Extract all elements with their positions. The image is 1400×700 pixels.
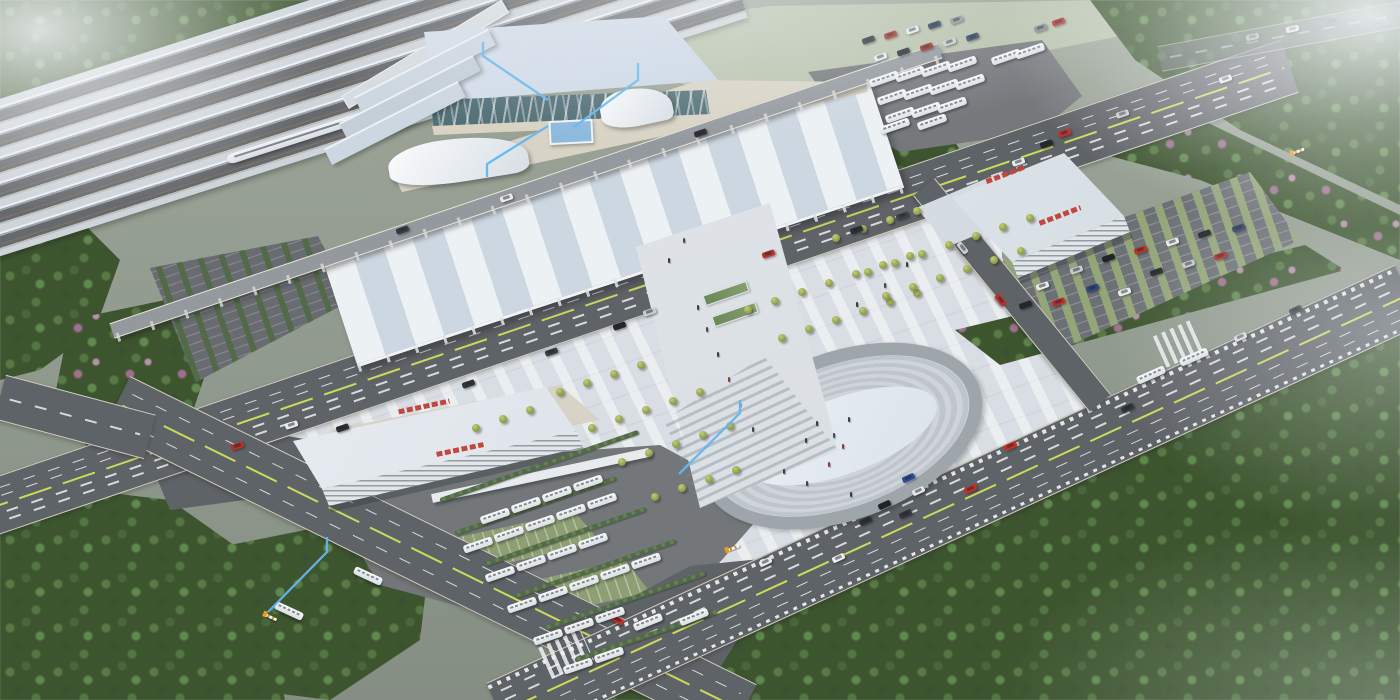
annotation-leader-line <box>483 42 548 100</box>
aerial-station-rendering <box>0 0 1400 700</box>
annotation-leader-line <box>679 400 740 474</box>
annotation-leader-line <box>574 63 638 127</box>
annotation-leader-lines <box>0 0 1400 700</box>
annotation-leader-line <box>487 126 548 177</box>
annotation-leader-line <box>268 537 327 612</box>
